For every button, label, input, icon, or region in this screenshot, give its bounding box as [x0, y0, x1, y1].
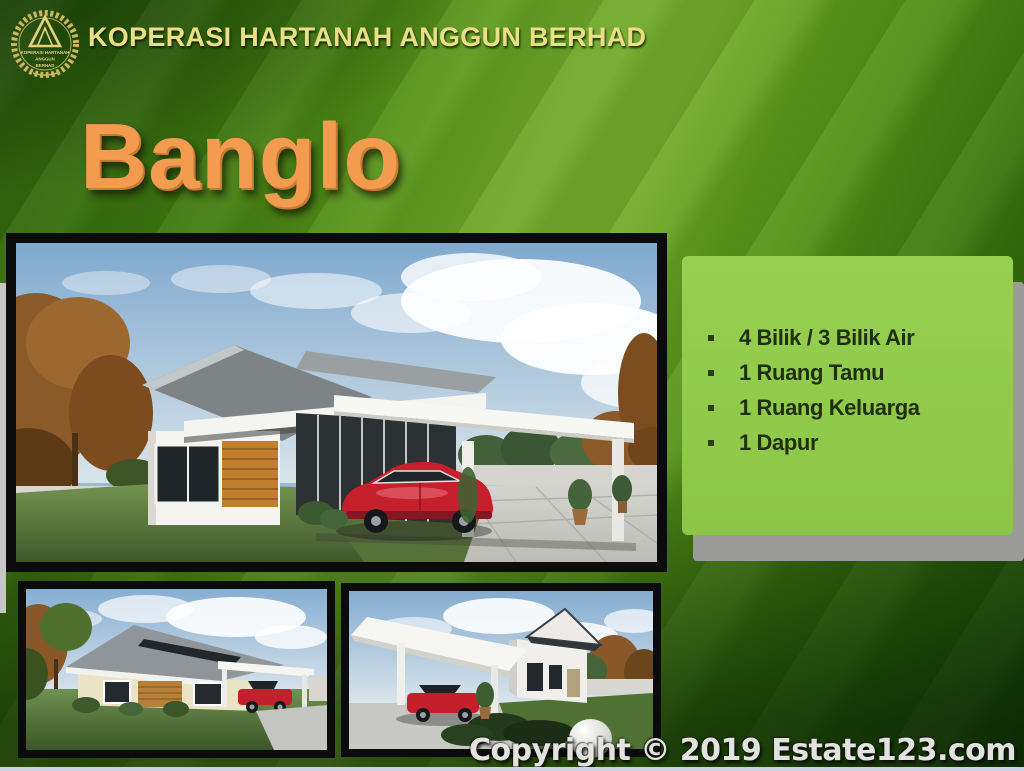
logo-text-line1: KOPERASI HARTANAH: [21, 50, 70, 55]
presentation-slide: KOPERASI HARTANAH ANGGUN BERHAD KOPERASI…: [0, 0, 1024, 771]
list-item: 4 Bilik / 3 Bilik Air: [696, 320, 1007, 355]
wood-panel: [222, 441, 278, 507]
logo-text-line2: ANGGUN: [35, 57, 55, 62]
square-bullet-icon: [708, 440, 714, 446]
list-item: 1 Ruang Keluarga: [696, 390, 1007, 425]
company-name: KOPERASI HARTANAH ANGGUN BERHAD: [88, 22, 646, 53]
feature-text: 4 Bilik / 3 Bilik Air: [739, 325, 914, 351]
feature-text: 1 Ruang Tamu: [739, 360, 884, 386]
canopy-column: [397, 643, 405, 705]
small-house-photo-middle: [341, 583, 661, 757]
feature-text: 1 Ruang Keluarga: [739, 395, 920, 421]
feature-panel: 4 Bilik / 3 Bilik Air 1 Ruang Tamu 1 Rua…: [682, 256, 1013, 535]
small-house-photo-left: [18, 581, 335, 758]
square-bullet-icon: [708, 405, 714, 411]
feature-list: 4 Bilik / 3 Bilik Air 1 Ruang Tamu 1 Rua…: [682, 256, 1013, 460]
logo-text-line3: BERHAD: [36, 63, 55, 68]
square-bullet-icon: [708, 335, 714, 341]
page-title: Banglo: [80, 108, 401, 206]
bungalow-side-render: [26, 589, 327, 750]
main-house-photo: [6, 233, 667, 572]
boundary-wall: [309, 675, 327, 701]
slide-bottom-edge: [0, 767, 1024, 771]
bungalow-carport-render: [349, 591, 653, 749]
logo-ribbon-icon: [33, 73, 57, 75]
list-item: 1 Dapur: [696, 425, 1007, 460]
front-door: [567, 669, 580, 697]
feature-text: 1 Dapur: [739, 430, 818, 456]
copyright-watermark: Copyright © 2019 Estate123.com: [469, 733, 1016, 768]
list-item: 1 Ruang Tamu: [696, 355, 1007, 390]
bungalow-front-render: [16, 243, 657, 562]
company-logo-emblem-icon: KOPERASI HARTANAH ANGGUN BERHAD: [8, 5, 82, 81]
square-bullet-icon: [708, 370, 714, 376]
logo-letter-a-icon: [30, 17, 60, 46]
